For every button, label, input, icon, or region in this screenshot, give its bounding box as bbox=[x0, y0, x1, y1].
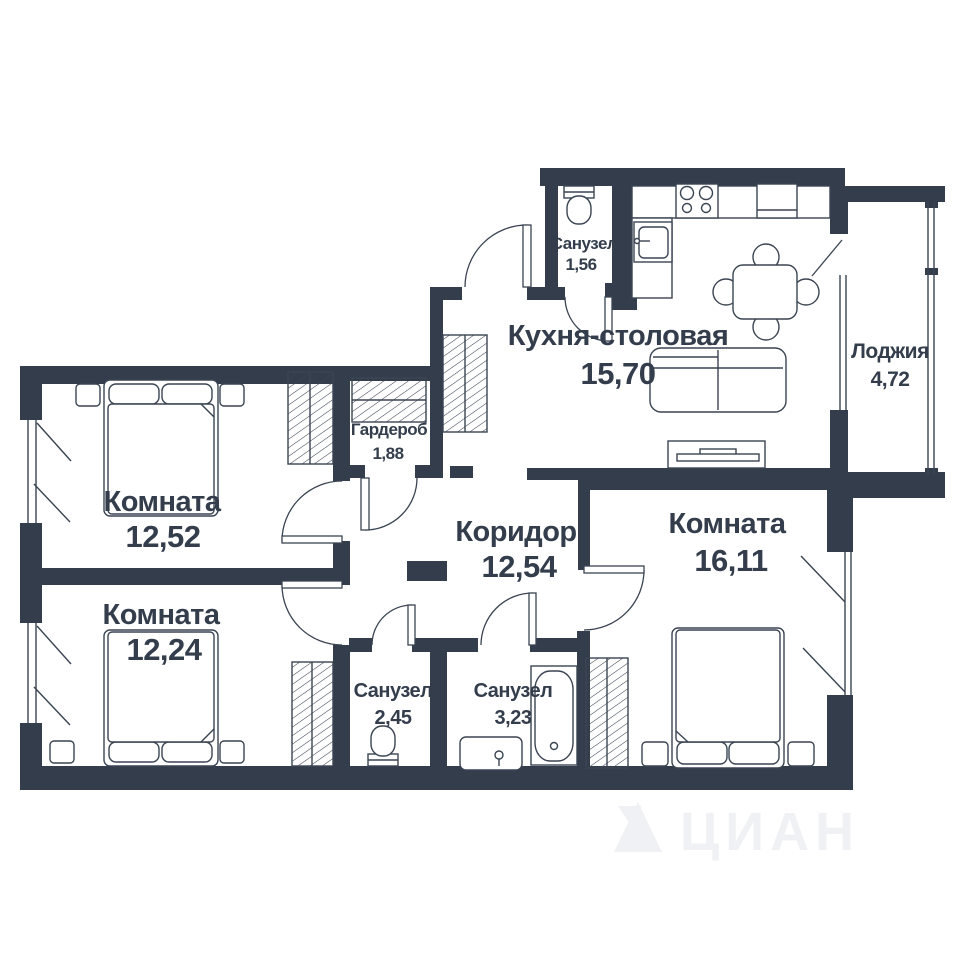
wall-segment bbox=[20, 766, 853, 790]
label-wardrobe-name: Гардероб bbox=[351, 420, 427, 439]
wall-segment bbox=[450, 466, 473, 478]
wall-segment bbox=[333, 465, 365, 478]
floor-plan: Кухня-столовая 15,70 Лоджия 4,72 Санузел… bbox=[0, 0, 960, 960]
kitchen-sink bbox=[634, 222, 672, 262]
wall-segment bbox=[447, 638, 478, 652]
label-kitchen-name: Кухня-столовая bbox=[508, 320, 729, 352]
wall-segment bbox=[430, 287, 462, 300]
watermark-text: ЦИАН bbox=[680, 802, 860, 862]
sink-wc3 bbox=[460, 737, 522, 770]
wall-segment bbox=[20, 723, 42, 766]
dining-table bbox=[713, 244, 819, 340]
label-wc1-area: 1,56 bbox=[565, 255, 596, 274]
sofa bbox=[650, 348, 786, 412]
label-wc3-area: 3,23 bbox=[495, 707, 532, 729]
label-corridor-name: Коридор bbox=[455, 516, 576, 548]
door-wc3 bbox=[481, 593, 536, 645]
window-balcony-block bbox=[840, 275, 846, 410]
door-loggia bbox=[812, 240, 842, 276]
wall-segment bbox=[827, 472, 945, 498]
wall-segment bbox=[530, 638, 577, 652]
door-bedroom3 bbox=[584, 566, 644, 630]
door-bedroom1 bbox=[282, 481, 342, 543]
wall-segment bbox=[827, 490, 853, 552]
door-bedroom2 bbox=[282, 581, 342, 645]
wall-segment bbox=[333, 541, 350, 585]
label-bedroom2-area: 12,24 bbox=[126, 632, 202, 667]
wardrobe-rail bbox=[352, 378, 426, 422]
watermark-logo-icon bbox=[614, 802, 662, 852]
door-wardrobe bbox=[361, 478, 417, 530]
label-bedroom2-name: Комната bbox=[103, 599, 221, 631]
window-bedroom2 bbox=[28, 623, 71, 725]
label-corridor-area: 12,54 bbox=[481, 549, 557, 584]
wall-segment bbox=[527, 468, 578, 480]
wall-segment bbox=[827, 695, 853, 766]
kitchen-appliance bbox=[757, 184, 797, 218]
wall-segment bbox=[925, 268, 938, 275]
label-wc2-name: Санузел bbox=[354, 680, 433, 702]
wall-segment bbox=[578, 468, 590, 570]
label-wardrobe-area: 1,88 bbox=[372, 444, 403, 463]
wall-segment bbox=[407, 561, 447, 581]
wall-segment bbox=[430, 287, 443, 477]
wall-segment bbox=[830, 410, 848, 475]
stove bbox=[676, 184, 718, 218]
window-bedroom3 bbox=[801, 552, 851, 695]
wardrobe-bedroom3 bbox=[586, 658, 628, 768]
wardrobe-bedroom2 bbox=[292, 662, 333, 766]
watermark: ЦИАН bbox=[614, 802, 860, 862]
wall-segment bbox=[845, 186, 945, 202]
toilet-wc1 bbox=[564, 186, 594, 224]
label-wc2-area: 2,45 bbox=[375, 707, 412, 729]
door-wc2 bbox=[372, 605, 415, 645]
bed-bedroom3 bbox=[642, 628, 814, 768]
entry-closet bbox=[443, 335, 487, 432]
label-bedroom3-name: Комната bbox=[669, 508, 787, 540]
window-loggia-glazing bbox=[928, 202, 934, 475]
entrance-door bbox=[465, 225, 531, 287]
tv-stand bbox=[668, 441, 765, 468]
window-bedroom1 bbox=[28, 420, 71, 523]
label-loggia-area: 4,72 bbox=[871, 368, 910, 391]
wardrobe-bedroom1 bbox=[288, 372, 333, 464]
wall-segment bbox=[349, 638, 372, 652]
label-bedroom3-area: 16,11 bbox=[694, 543, 768, 578]
label-wc1-name: Санузел bbox=[551, 234, 617, 253]
toilet-wc2 bbox=[368, 726, 398, 766]
wall-segment bbox=[925, 468, 938, 475]
label-bedroom1-area: 12,52 bbox=[125, 519, 200, 554]
label-loggia-name: Лоджия bbox=[851, 340, 929, 363]
wall-segment bbox=[578, 468, 830, 490]
label-kitchen-area: 15,70 bbox=[580, 356, 655, 391]
label-wc3-name: Санузел bbox=[474, 680, 553, 702]
wall-segment bbox=[925, 202, 938, 208]
label-bedroom1-name: Комната bbox=[104, 486, 222, 518]
wall-segment bbox=[430, 638, 447, 766]
floor-plan-page: Кухня-столовая 15,70 Лоджия 4,72 Санузел… bbox=[0, 0, 960, 960]
wall-segment bbox=[333, 366, 350, 481]
wall-segment bbox=[333, 645, 350, 766]
